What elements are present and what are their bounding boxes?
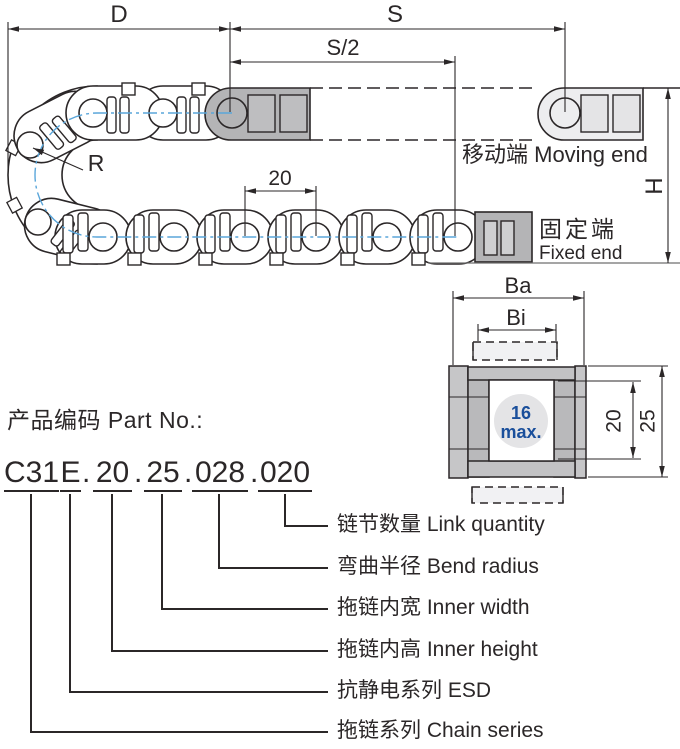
section-outer-height-label: 25 [637,409,660,432]
moving-end-block-current [205,88,310,140]
part-no-segment-inner-width: 25 [144,457,182,492]
label-esd: 抗静电系列 ESD [337,677,491,705]
open-crossbar-top [473,342,557,360]
fixed-end-block [475,212,532,262]
pitch-label: 20 [268,167,291,190]
leader-line-link-quantity [284,494,328,527]
part-no-heading: 产品编码 Part No.: [7,401,203,435]
label-inner-height: 拖链内高 Inner height [337,636,538,664]
dim-s-label: S [387,1,403,28]
section-top-bar [468,367,575,380]
label-inner-width: 拖链内宽 Inner width [337,594,530,622]
section-bottom-bar [468,461,575,477]
drag-chain-technical-drawing: D S S/2 R 20 H 移动端 Moving end 固定端 Fixed … [0,0,680,520]
part-no-separator: . [134,457,142,488]
section-right-outer-plate [575,366,586,478]
part-no-separator: . [82,457,90,488]
dim-r-label: R [88,150,105,176]
moving-end-label: 移动端 Moving end [462,142,648,167]
dim-h-label: H [640,177,667,194]
section-inner-height-label: 20 [603,409,626,432]
part-no-segment-link-quantity: 020 [258,457,312,492]
dim-ba-label: Ba [505,273,533,298]
moving-end-block-extended [538,88,643,140]
open-crossbar-bottom [472,487,563,503]
part-no-segment-esd: E [60,457,81,492]
dim-s-half-label: S/2 [326,35,359,60]
dim-bi-label: Bi [506,305,526,330]
part-no-segment-series: C31 [4,457,59,492]
fixed-end-label-en: Fixed end [539,243,622,264]
part-no-segment-bend-radius: 028 [192,457,248,492]
dim-d-label: D [110,1,127,28]
label-chain-series: 拖链系列 Chain series [337,717,544,745]
cable-max-value: 16 [511,403,531,423]
bend-pivot-hole [25,209,51,235]
fixed-end-label-cn: 固定端 [539,216,617,242]
page: D S S/2 R 20 H 移动端 Moving end 固定端 Fixed … [0,0,680,749]
section-left-outer-plate [449,366,468,478]
part-no-segment-inner-height: 20 [93,457,132,492]
label-link-quantity: 链节数量 Link quantity [337,511,545,539]
cable-max-suffix: max. [500,422,541,442]
label-bend-radius: 弯曲半径 Bend radius [337,553,539,581]
